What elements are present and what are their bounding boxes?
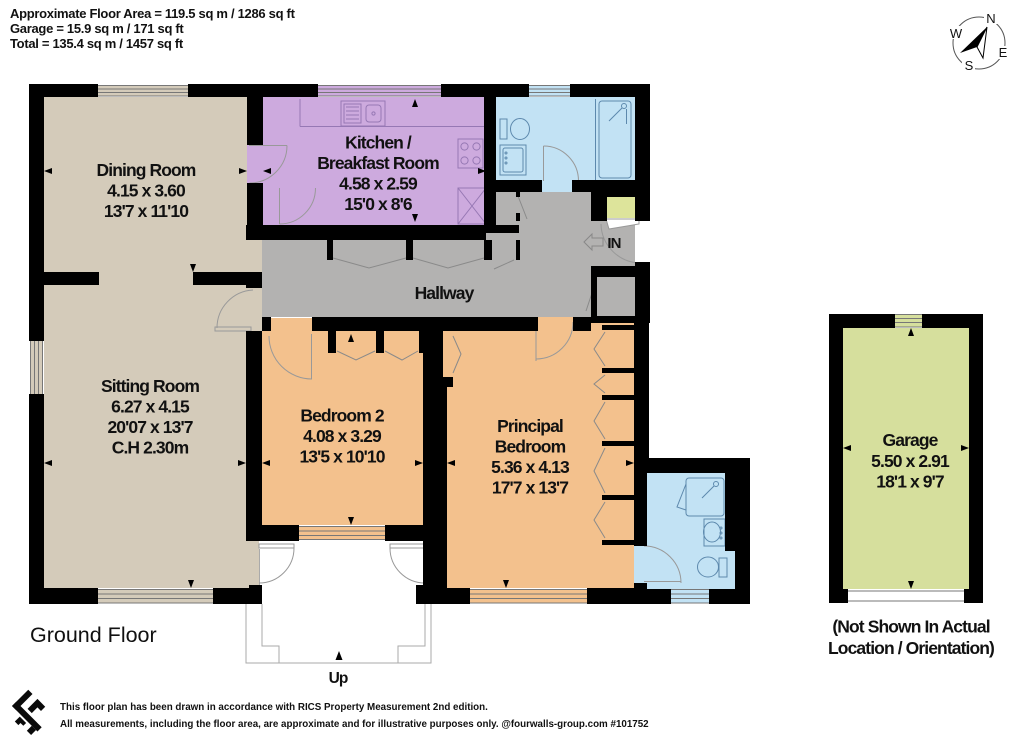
svg-text:Approximate Floor Area = 119.5: Approximate Floor Area = 119.5 sq m / 12…	[10, 6, 296, 21]
svg-text:This floor plan has been drawn: This floor plan has been drawn in accord…	[60, 702, 488, 713]
svg-text:E: E	[999, 45, 1008, 60]
svg-text:(Not Shown In Actual: (Not Shown In Actual	[832, 617, 989, 637]
svg-text:4.15 x 3.60: 4.15 x 3.60	[107, 181, 186, 201]
svg-text:Up: Up	[329, 670, 348, 687]
svg-text:Breakfast Room: Breakfast Room	[317, 153, 439, 173]
svg-text:Garage: Garage	[883, 430, 939, 450]
svg-text:S: S	[965, 58, 974, 73]
svg-text:13'7 x 11'10: 13'7 x 11'10	[104, 201, 189, 221]
svg-text:4.58 x 2.59: 4.58 x 2.59	[339, 174, 418, 194]
svg-text:20'07 x 13'7: 20'07 x 13'7	[107, 417, 192, 437]
svg-text:13'5 x 10'10: 13'5 x 10'10	[299, 447, 385, 467]
svg-text:W: W	[950, 26, 963, 41]
svg-text:Kitchen /: Kitchen /	[345, 133, 412, 153]
svg-text:IN: IN	[607, 235, 620, 252]
svg-text:Hallway: Hallway	[415, 283, 475, 303]
svg-text:6.27 x 4.15: 6.27 x 4.15	[111, 397, 190, 417]
svg-text:C.H 2.30m: C.H 2.30m	[112, 438, 189, 458]
svg-text:Principal: Principal	[497, 416, 563, 436]
svg-text:Sitting Room: Sitting Room	[101, 376, 199, 396]
svg-text:Bedroom 2: Bedroom 2	[300, 406, 384, 426]
svg-text:15'0 x 8'6: 15'0 x 8'6	[344, 194, 413, 214]
svg-text:5.36 x 4.13: 5.36 x 4.13	[491, 457, 570, 477]
svg-text:4.08 x 3.29: 4.08 x 3.29	[303, 426, 382, 446]
svg-text:All measurements, including th: All measurements, including the floor ar…	[60, 719, 649, 730]
svg-text:5.50 x 2.91: 5.50 x 2.91	[871, 451, 950, 471]
svg-text:N: N	[986, 11, 995, 26]
svg-text:Total = 135.4 sq m / 1457 sq f: Total = 135.4 sq m / 1457 sq ft	[10, 36, 184, 51]
svg-text:17'7 x 13'7: 17'7 x 13'7	[492, 478, 568, 498]
svg-text:18'1 x 9'7: 18'1 x 9'7	[876, 472, 944, 492]
svg-text:Bedroom: Bedroom	[495, 437, 566, 457]
svg-text:Location / Orientation): Location / Orientation)	[828, 638, 994, 658]
svg-text:Ground Floor: Ground Floor	[30, 623, 157, 647]
svg-text:Garage = 15.9 sq m / 171 sq ft: Garage = 15.9 sq m / 171 sq ft	[10, 21, 184, 36]
svg-text:Dining Room: Dining Room	[97, 160, 196, 180]
